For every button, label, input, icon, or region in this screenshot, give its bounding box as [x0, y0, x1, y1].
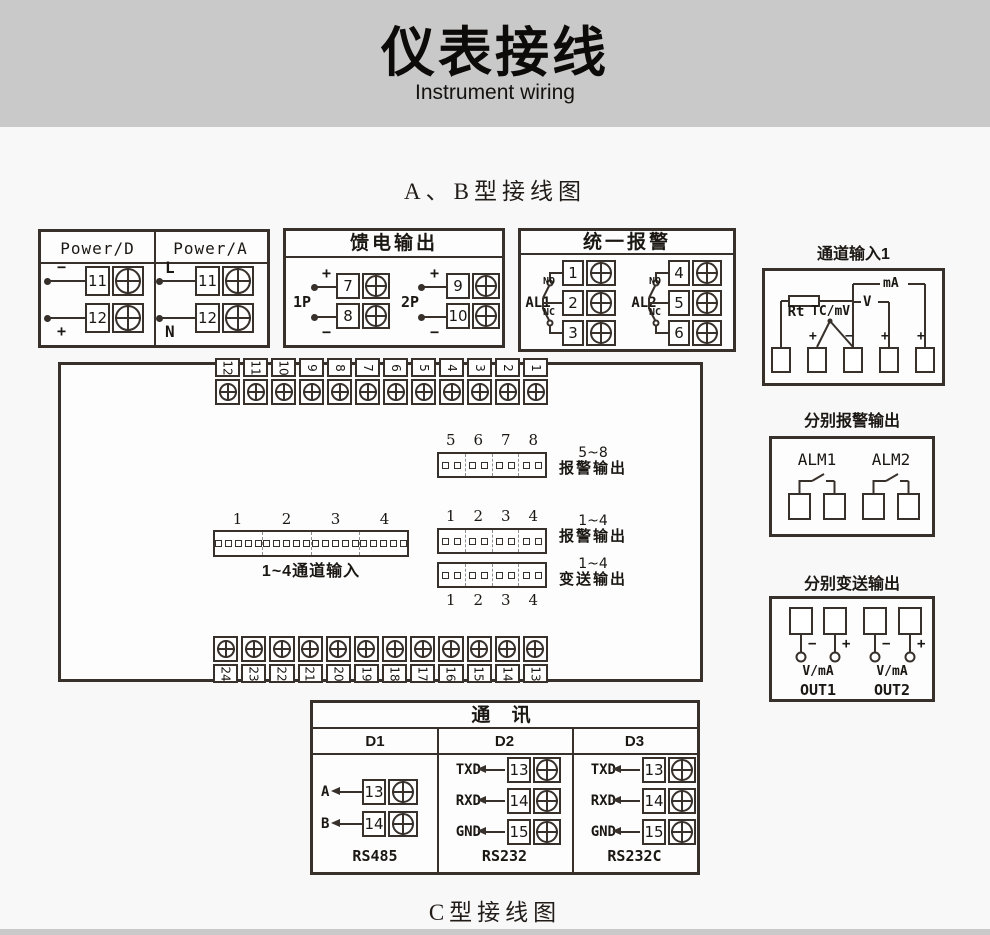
col-header-d3: D3 — [572, 734, 697, 751]
screw-icon — [526, 640, 544, 658]
terminal-screw — [533, 819, 561, 845]
terminal-number: 13 — [642, 757, 666, 783]
screw-icon — [219, 383, 237, 401]
contact-pin — [862, 493, 885, 520]
wire — [313, 316, 336, 318]
terminal-number: 14 — [507, 788, 531, 814]
v-label: V — [863, 295, 871, 310]
pin — [496, 462, 503, 469]
pin-number: 2 — [465, 591, 493, 609]
caption-range: 1~4 — [551, 557, 635, 572]
relay-contact-graphic — [642, 260, 670, 352]
pin-number: 3 — [492, 591, 520, 609]
pin — [312, 540, 319, 547]
terminal-number: 12 — [195, 303, 220, 333]
comm-table: 通 讯 D1 D2 D3 A 13 B 14 RS485 TXD 13 RXD … — [310, 700, 700, 875]
pin-sign: + — [881, 330, 889, 343]
terminal-screw — [533, 757, 561, 783]
signal-arrow — [485, 769, 505, 771]
screw-icon — [387, 383, 405, 401]
board-terminal-bottom: 17 — [410, 636, 435, 683]
signal-label: A — [321, 785, 329, 800]
pin-number: 8 — [520, 431, 548, 449]
screw-icon — [590, 322, 612, 344]
pin — [523, 572, 530, 579]
pin — [523, 462, 530, 469]
terminal-screw — [411, 379, 436, 405]
power-d-sign-plus: + — [57, 324, 66, 339]
pin — [255, 540, 262, 547]
trans14-connector — [437, 562, 547, 588]
screw-icon — [499, 383, 517, 401]
screw-icon — [671, 790, 693, 812]
screw-icon — [392, 813, 414, 835]
screw-icon — [471, 383, 489, 401]
pin — [352, 540, 359, 547]
terminal-number: 12 — [85, 303, 110, 333]
trans14-caption: 1~4 变送输出 — [551, 557, 635, 587]
contact-pin — [823, 493, 846, 520]
board-terminal-bottom: 16 — [438, 636, 463, 683]
pin — [442, 462, 449, 469]
pin-sign: + — [917, 330, 925, 343]
board-top-strip: 12 11 10 9 8 7 — [215, 358, 548, 405]
separate-alarm-title: 分别报警输出 — [769, 413, 935, 431]
signal-arrow — [485, 831, 505, 833]
pin-number: 2 — [465, 507, 493, 525]
signal-label: TXD — [576, 763, 616, 778]
no-contact-label: NO — [649, 276, 661, 287]
terminal-screw — [326, 636, 351, 662]
pin-sign: − — [845, 330, 853, 343]
pin — [454, 462, 461, 469]
screw-icon — [536, 759, 558, 781]
wire — [420, 316, 446, 318]
terminal-screw — [495, 636, 520, 662]
board-terminal-bottom: 15 — [467, 636, 492, 683]
caption-text: 报警输出 — [551, 461, 635, 476]
pin — [380, 540, 387, 547]
pin-number: 6 — [465, 431, 493, 449]
screw-icon — [273, 640, 291, 658]
feed-sign: + — [430, 266, 439, 281]
pin — [454, 538, 461, 545]
terminal-number: 13 — [507, 757, 531, 783]
pin — [496, 538, 503, 545]
terminal-number: 14 — [362, 811, 386, 837]
terminal-screw — [243, 379, 268, 405]
terminal-screw — [410, 636, 435, 662]
trans14-numbers: 1234 — [437, 591, 547, 609]
board-terminal-bottom: 21 — [298, 636, 323, 683]
screw-icon — [365, 305, 387, 327]
connector-group — [465, 530, 492, 552]
screw-icon — [536, 790, 558, 812]
connector-group — [518, 530, 545, 552]
contact-pin — [788, 493, 811, 520]
tc-mv-label: TC/mV — [811, 305, 850, 319]
alarm14-caption: 1~4 报警输出 — [551, 514, 635, 544]
board-terminal-bottom: 18 — [382, 636, 407, 683]
pin — [225, 540, 232, 547]
pin — [469, 462, 476, 469]
screw-icon — [301, 640, 319, 658]
terminal-screw — [668, 757, 696, 783]
terminal-number: 11 — [195, 266, 220, 296]
terminal-number: 20 — [326, 664, 351, 683]
board-terminal-top: 12 — [215, 358, 240, 405]
screw-icon — [329, 640, 347, 658]
terminal-number: 1 — [523, 358, 548, 377]
signal-arrow — [620, 831, 640, 833]
pin — [400, 540, 407, 547]
connector-group — [492, 564, 519, 586]
pin-number: 5 — [437, 431, 465, 449]
connector-group — [439, 564, 465, 586]
terminal-screw — [586, 290, 616, 316]
board-terminal-bottom: 22 — [269, 636, 294, 683]
screw-icon — [696, 262, 718, 284]
pin — [263, 540, 270, 547]
input-pin — [915, 347, 935, 373]
page-subtitle: Instrument wiring — [0, 81, 990, 105]
screw-icon — [225, 305, 251, 331]
std-rs485: RS485 — [313, 848, 437, 865]
screw-icon — [590, 292, 612, 314]
terminal-screw — [668, 819, 696, 845]
polarity-sign: − — [808, 637, 816, 651]
board-terminal-bottom: 14 — [495, 636, 520, 683]
input-pin — [843, 347, 863, 373]
page-title: 仪表接线 — [0, 0, 990, 80]
pin — [454, 572, 461, 579]
rt-label: Rt — [779, 305, 813, 320]
terminal-screw — [213, 636, 238, 662]
vma-label: V/mA — [862, 665, 922, 679]
terminal-screw — [112, 303, 144, 333]
terminal-number: 12 — [215, 358, 240, 377]
terminal-screw — [298, 636, 323, 662]
screw-icon — [365, 275, 387, 297]
ma-label: mA — [883, 277, 899, 291]
screw-icon — [303, 383, 321, 401]
terminal-number: 17 — [410, 664, 435, 683]
alarm58-caption: 5~8 报警输出 — [551, 446, 635, 476]
terminal-number: 13 — [362, 779, 386, 805]
screw-icon — [414, 640, 432, 658]
col-header-d1: D1 — [313, 734, 437, 751]
terminal-number: 11 — [85, 266, 110, 296]
screw-icon — [415, 383, 433, 401]
terminal-number: 6 — [668, 320, 690, 346]
terminal-number: 2 — [562, 290, 584, 316]
terminal-screw — [523, 636, 548, 662]
board-terminal-top: 1 — [523, 358, 548, 405]
caption-range: 5~8 — [551, 446, 635, 461]
signal-arrow — [485, 800, 505, 802]
board-terminal-top: 5 — [411, 358, 436, 405]
terminal-screw — [241, 636, 266, 662]
wire — [46, 280, 85, 282]
board-terminal-top: 2 — [495, 358, 520, 405]
terminal-number: 18 — [382, 664, 407, 683]
connector-group — [492, 530, 519, 552]
terminal-number: 9 — [446, 273, 470, 299]
pin-number: 2 — [262, 510, 311, 528]
terminal-screw — [467, 636, 492, 662]
pin-number: 1 — [437, 507, 465, 525]
pin-number: 3 — [311, 510, 360, 528]
caption-text: 变送输出 — [551, 572, 635, 587]
terminal-screw — [668, 788, 696, 814]
terminal-screw — [439, 379, 464, 405]
pin — [508, 572, 515, 579]
power-block: Power/D Power/A − 11 + 12 L 11 N 12 — [38, 229, 270, 348]
screw-icon — [475, 275, 497, 297]
vma-label: V/mA — [788, 665, 848, 679]
wire — [313, 286, 336, 288]
pin — [332, 540, 339, 547]
pin — [442, 572, 449, 579]
terminal-number: 10 — [271, 358, 296, 377]
pin-sign: + — [809, 330, 817, 343]
wire — [46, 317, 85, 319]
terminal-screw — [382, 636, 407, 662]
connector-group — [518, 454, 545, 476]
pin — [342, 540, 349, 547]
connector-group — [518, 564, 545, 586]
terminal-number: 7 — [355, 358, 380, 377]
ab-type-heading: A、B型接线图 — [0, 172, 990, 206]
terminal-screw — [692, 290, 722, 316]
terminal-number: 8 — [327, 358, 352, 377]
terminal-screw — [362, 273, 390, 299]
pin — [273, 540, 280, 547]
terminal-number: 6 — [383, 358, 408, 377]
pin-number: 4 — [360, 510, 409, 528]
polarity-sign: + — [842, 637, 850, 651]
pin-number: 4 — [520, 507, 548, 525]
screw-icon — [590, 262, 612, 284]
pin — [523, 538, 530, 545]
terminal-screw — [383, 379, 408, 405]
pin — [481, 538, 488, 545]
header-divider — [313, 753, 697, 755]
screw-icon — [115, 268, 141, 294]
pin — [390, 540, 397, 547]
feed-output-block: 馈电输出 1P + 7 − 8 2P + 9 − 10 — [283, 228, 505, 348]
connector-group — [439, 454, 465, 476]
board-terminal-bottom: 23 — [241, 636, 266, 683]
terminal-number: 4 — [439, 358, 464, 377]
pin — [235, 540, 242, 547]
signal-arrow — [620, 769, 640, 771]
connector-group — [465, 564, 492, 586]
signal-label: RXD — [441, 794, 481, 809]
pin — [535, 538, 542, 545]
terminal-screw — [523, 379, 548, 405]
signal-arrow — [339, 823, 362, 825]
screw-icon — [357, 640, 375, 658]
terminal-screw — [467, 379, 492, 405]
c-type-heading: C型接线图 — [0, 893, 990, 927]
terminal-number: 5 — [411, 358, 436, 377]
terminal-number: 7 — [336, 273, 360, 299]
title-banner: 仪表接线 Instrument wiring — [0, 0, 990, 127]
pin — [442, 538, 449, 545]
terminal-number: 2 — [495, 358, 520, 377]
contact-pin — [897, 493, 920, 520]
terminal-screw — [112, 266, 144, 296]
alarm58-numbers: 5678 — [437, 431, 547, 449]
terminal-screw — [354, 636, 379, 662]
terminal-number: 14 — [495, 664, 520, 683]
polarity-sign: + — [917, 637, 925, 651]
nc-contact-label: NC — [649, 307, 661, 318]
terminal-screw — [362, 303, 390, 329]
terminal-number: 14 — [642, 788, 666, 814]
feed-group-label: 1P — [288, 294, 316, 311]
board-terminal-bottom: 20 — [326, 636, 351, 683]
instrument-wiring-page: 仪表接线 Instrument wiring A、B型接线图 Power/D P… — [0, 0, 990, 935]
screw-icon — [386, 640, 404, 658]
relay-contact-graphic — [536, 260, 564, 352]
pin — [360, 540, 367, 547]
connector-group — [311, 532, 359, 555]
board-terminal-top: 3 — [467, 358, 492, 405]
input-pin — [771, 347, 791, 373]
terminal-screw — [271, 379, 296, 405]
terminal-screw — [388, 779, 418, 805]
power-a-sign-l: L — [165, 260, 175, 276]
channel-input-block: Rt TC/mV V mA + − + + — [762, 268, 945, 386]
terminal-number: 5 — [668, 290, 690, 316]
signal-arrow — [620, 800, 640, 802]
board-terminal-top: 8 — [327, 358, 352, 405]
terminal-number: 15 — [507, 819, 531, 845]
pin — [370, 540, 377, 547]
bottom-gray-strip — [0, 929, 990, 935]
separate-transmit-block: − + − + V/mA V/mA OUT1 OUT2 — [769, 596, 935, 702]
terminal-number: 15 — [642, 819, 666, 845]
terminal-screw — [495, 379, 520, 405]
terminal-number: 19 — [354, 664, 379, 683]
board-terminal-top: 7 — [355, 358, 380, 405]
terminal-number: 23 — [241, 664, 266, 683]
caption-range: 1~4 — [551, 514, 635, 529]
terminal-number: 9 — [299, 358, 324, 377]
out1-label: OUT1 — [788, 682, 848, 699]
screw-icon — [696, 322, 718, 344]
terminal-number: 8 — [336, 303, 360, 329]
wire — [158, 317, 195, 319]
board-terminal-top: 4 — [439, 358, 464, 405]
screw-icon — [470, 640, 488, 658]
screw-icon — [217, 640, 235, 658]
channel-in-connector — [213, 530, 409, 557]
pin — [496, 572, 503, 579]
terminal-number: 4 — [668, 260, 690, 286]
out2-label: OUT2 — [862, 682, 922, 699]
caption-text: 报警输出 — [551, 529, 635, 544]
pin — [481, 462, 488, 469]
channel-in-caption: 1~4通道输入 — [213, 563, 409, 581]
board-terminal-bottom: 13 — [523, 636, 548, 683]
power-d-header: Power/D — [41, 240, 154, 258]
terminal-number: 3 — [562, 320, 584, 346]
terminal-screw — [438, 636, 463, 662]
terminal-number: 10 — [446, 303, 470, 329]
separate-transmit-title: 分别变送输出 — [769, 576, 935, 594]
pin — [535, 572, 542, 579]
pin — [322, 540, 329, 547]
board-bottom-strip: 24 23 22 21 20 19 — [213, 636, 548, 683]
pin — [215, 540, 222, 547]
pin-number: 7 — [492, 431, 520, 449]
col-header-d2: D2 — [437, 734, 572, 751]
screw-icon — [498, 640, 516, 658]
screw-icon — [671, 759, 693, 781]
connector-group — [262, 532, 310, 555]
board-terminal-top: 11 — [243, 358, 268, 405]
pin — [245, 540, 252, 547]
terminal-screw — [533, 788, 561, 814]
feed-sign: − — [322, 325, 331, 340]
signal-arrow — [339, 791, 362, 793]
screw-icon — [527, 383, 545, 401]
terminal-screw — [222, 266, 254, 296]
pin — [508, 538, 515, 545]
board-terminal-top: 6 — [383, 358, 408, 405]
screw-icon — [475, 305, 497, 327]
screw-icon — [115, 305, 141, 331]
pin — [303, 540, 310, 547]
terminal-screw — [692, 260, 722, 286]
connector-group — [465, 454, 492, 476]
pin — [469, 538, 476, 545]
channel-in-numbers: 1234 — [213, 510, 409, 528]
unified-alarm-title: 统一报警 — [521, 231, 733, 255]
terminal-screw — [692, 320, 722, 346]
terminal-number: 1 — [562, 260, 584, 286]
alarm14-numbers: 1234 — [437, 507, 547, 525]
board-terminal-bottom: 24 — [213, 636, 238, 683]
board-terminal-top: 9 — [299, 358, 324, 405]
pin-number: 1 — [437, 591, 465, 609]
power-d-sign-minus: − — [57, 260, 66, 275]
separate-alarm-block: ALM1 ALM2 — [769, 436, 935, 537]
terminal-screw — [215, 379, 240, 405]
board-terminal-bottom: 19 — [354, 636, 379, 683]
terminal-screw — [472, 273, 500, 299]
wire — [420, 286, 446, 288]
terminal-number: 13 — [523, 664, 548, 683]
pin — [481, 572, 488, 579]
screw-icon — [536, 821, 558, 843]
terminal-number: 22 — [269, 664, 294, 683]
screw-icon — [247, 383, 265, 401]
power-a-header: Power/A — [154, 240, 267, 258]
screw-icon — [443, 383, 461, 401]
input-pin — [879, 347, 899, 373]
terminal-screw — [299, 379, 324, 405]
screw-icon — [392, 781, 414, 803]
screw-icon — [359, 383, 377, 401]
std-rs232: RS232 — [437, 848, 572, 865]
terminal-screw — [472, 303, 500, 329]
pin — [535, 462, 542, 469]
connector-group — [439, 530, 465, 552]
